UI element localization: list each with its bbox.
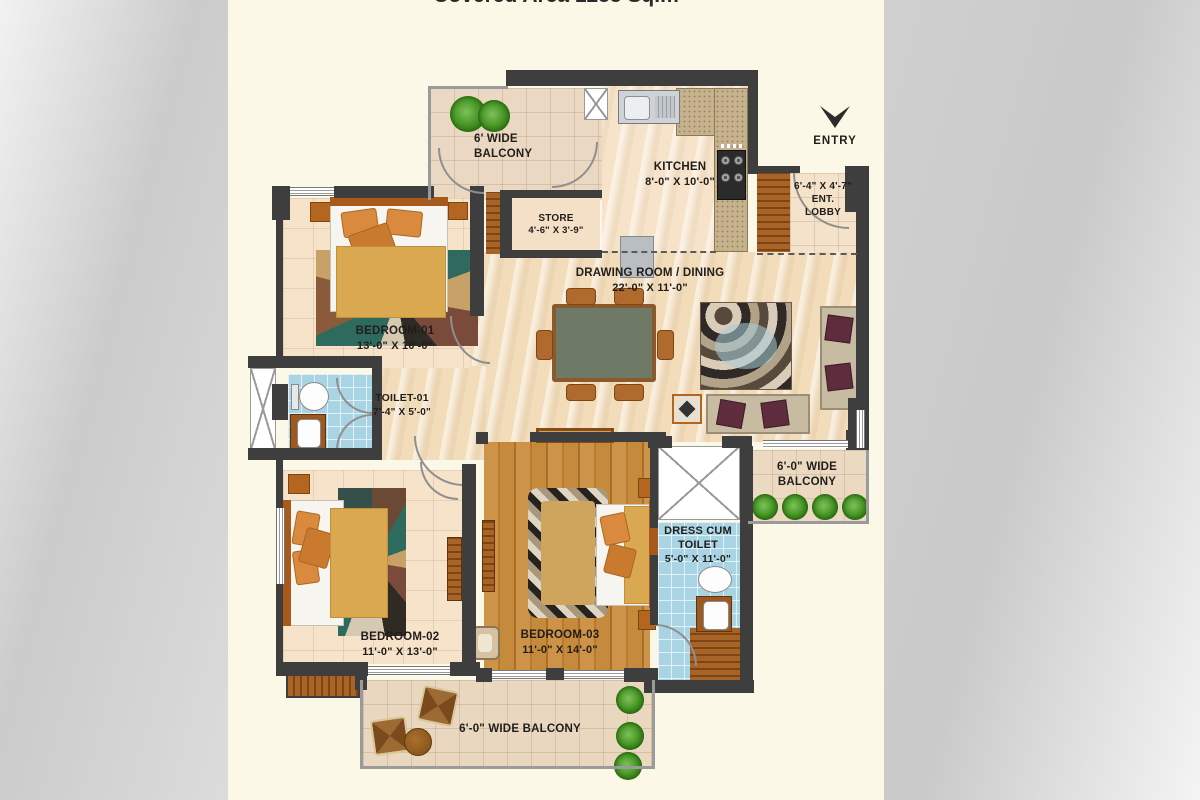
wall — [248, 356, 382, 368]
dress-toilet-wc — [698, 566, 732, 593]
wall — [476, 668, 492, 682]
drawing-dining-label: DRAWING ROOM / DINING 22'-0" X 11'-0" — [560, 266, 740, 295]
dress-toilet-basin — [703, 601, 729, 630]
window — [276, 508, 285, 584]
toilet1-label: TOILET-01 7'-4" X 5'-0" — [348, 392, 456, 419]
dining-chair — [566, 384, 596, 401]
balcony-chair — [417, 685, 460, 728]
dress-toilet-vanity — [696, 596, 732, 632]
bedroom3-label: BEDROOM-03 11'-0" X 14'-0" — [490, 628, 630, 657]
nightstand — [448, 202, 468, 220]
balcony-rail — [748, 521, 869, 524]
balcony-rail — [866, 450, 869, 524]
side-table-bedroom2 — [288, 474, 310, 494]
wall — [272, 186, 290, 220]
balcony-rail — [428, 86, 508, 89]
open-boundary — [602, 251, 716, 253]
dining-chair — [657, 330, 674, 360]
side-table-decor — [679, 401, 696, 418]
balcony-rail — [360, 766, 655, 769]
dining-table — [552, 304, 656, 382]
deck-dress-toilet — [690, 628, 740, 682]
dining-chair — [536, 330, 553, 360]
dining-chair — [614, 384, 644, 401]
wall — [500, 250, 602, 258]
nightstand — [310, 202, 332, 222]
balcony-rail — [652, 680, 655, 768]
window — [492, 670, 546, 679]
wall — [748, 166, 800, 173]
floor-plan-page: Covered Area 1255 Sq.m — [0, 0, 1200, 800]
wall — [470, 186, 484, 316]
dress-toilet-label: DRESS CUM TOILET 5'-0" X 11'-0" — [652, 524, 744, 566]
entry-label: ENTRY — [802, 134, 868, 149]
bedroom3-rug-center — [541, 501, 595, 605]
wall — [506, 70, 758, 86]
wall — [546, 668, 564, 680]
wall — [644, 680, 754, 693]
bedroom1-blanket — [336, 246, 446, 318]
balcony-bottom-label: 6'-0" WIDE BALCONY — [420, 722, 620, 737]
wall — [650, 440, 658, 528]
toilet1-basin — [297, 419, 321, 448]
shrub — [616, 722, 644, 750]
drawing-rug — [700, 302, 792, 390]
side-table — [672, 394, 702, 424]
wall — [500, 190, 512, 258]
wall — [748, 86, 758, 174]
sofa-cushion — [716, 399, 746, 429]
sink-basin — [624, 96, 650, 120]
shrub — [782, 494, 808, 520]
shrub — [812, 494, 838, 520]
bedroom1-label: BEDROOM-01 13'-0" X 10'-0" — [330, 324, 460, 353]
kitchen-duct — [584, 88, 608, 120]
lift-block — [272, 384, 288, 420]
store-label: STORE 4'-6" X 3'-9" — [512, 212, 600, 237]
stove-knobs — [721, 144, 743, 148]
sofa-cushion — [760, 399, 789, 428]
shrub — [616, 686, 644, 714]
balcony-right-label: 6'-0" WIDE BALCONY — [748, 460, 866, 490]
window — [763, 440, 848, 448]
balcony-rail — [428, 86, 431, 200]
wall — [722, 436, 752, 448]
wall — [530, 432, 666, 442]
window — [564, 670, 624, 679]
entry-arrow-icon — [818, 104, 852, 132]
toilet1-wc — [299, 382, 329, 411]
ent-lobby-label: 6'-4" X 4'-7" ENT. LOBBY — [786, 180, 860, 219]
wall — [276, 218, 283, 366]
wall — [334, 186, 434, 198]
open-boundary — [757, 253, 857, 255]
sofa-bottom — [706, 394, 810, 434]
wall — [476, 432, 488, 444]
window — [290, 187, 334, 196]
sofa-right — [820, 306, 858, 410]
bedroom2-label: BEDROOM-02 11'-0" X 13'-0" — [330, 630, 470, 659]
tree — [478, 100, 510, 132]
kitchen-sink — [618, 90, 680, 124]
rug-highlight — [715, 323, 777, 369]
sofa-cushion — [824, 314, 853, 343]
sofa-cushion — [825, 363, 854, 392]
window — [368, 666, 450, 675]
wall — [856, 206, 869, 410]
shaft-top — [658, 446, 740, 520]
wall — [248, 448, 382, 460]
bedroom2-blanket — [330, 508, 388, 618]
balcony-top-label: 6' WIDE BALCONY — [474, 132, 584, 162]
sink-drainboard — [655, 96, 675, 118]
bedroom3-closet-left — [482, 520, 495, 592]
wall — [500, 190, 602, 198]
window — [856, 410, 865, 448]
toilet1-vanity — [290, 414, 326, 450]
shrub — [752, 494, 778, 520]
wall — [648, 436, 672, 448]
page-title: Covered Area 1255 Sq.m — [228, 0, 884, 8]
shrub — [842, 494, 868, 520]
toilet1-cistern — [291, 384, 299, 410]
bedroom2-wardrobe — [447, 537, 462, 601]
kitchen-label: KITCHEN 8'-0" X 10'-0" — [620, 160, 740, 189]
balcony-rail — [360, 680, 363, 768]
